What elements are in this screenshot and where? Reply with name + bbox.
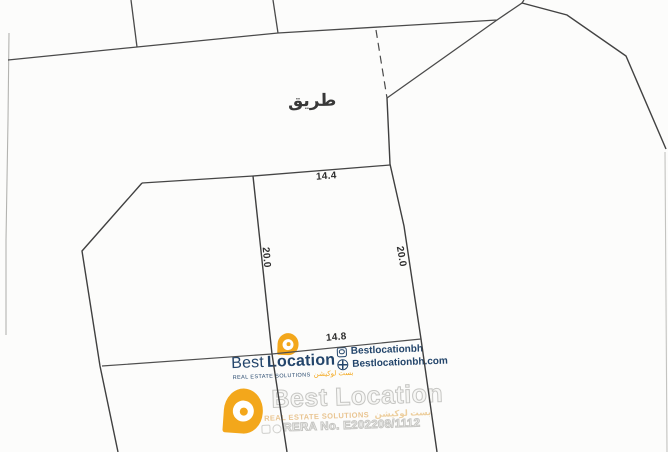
dimension-top: 14.4 [316, 170, 337, 182]
tagline-ar: بست لوكيشن [313, 370, 353, 378]
plot-north-line [142, 165, 390, 183]
dimension-bottom: 14.8 [326, 331, 348, 344]
website-row: Bestlocationbh.com [337, 356, 448, 371]
globe-icon [272, 424, 281, 433]
pin-ring [232, 400, 254, 422]
dimension-left: 20.0 [259, 244, 272, 271]
dashed-road-line [376, 30, 387, 98]
pin-ring [282, 338, 293, 349]
globe-icon [337, 359, 348, 370]
brand-contacts: Bestlocationbh Bestlocationbh.com [337, 343, 448, 371]
instagram-handle: Bestlocationbh [351, 343, 424, 357]
instagram-icon [337, 347, 347, 357]
website-url: Bestlocationbh.com [352, 356, 448, 370]
right-faint-boundary [665, 152, 667, 452]
road-north-boundary [8, 0, 524, 60]
road-diagonal-line [387, 20, 497, 98]
scanned-plot-map: { "map": { "road_label": "طريق", "dim_to… [0, 0, 668, 452]
pin-dot [286, 342, 290, 346]
top-lot-divider-2 [273, 0, 278, 33]
ghost-brand-first: Best [271, 384, 328, 414]
plot-west-boundary [82, 183, 142, 452]
left-faint-boundary [6, 33, 9, 335]
dimension-right: 20.0 [393, 243, 408, 271]
northeast-plot-boundary [522, 3, 666, 149]
brand-first: Best [231, 354, 264, 372]
instagram-icon [261, 424, 270, 433]
watermark-ghost: Best Location REAL ESTATE SOLUTIONS بست … [219, 379, 471, 450]
pin-dot [239, 407, 248, 416]
brand-second: Location [267, 351, 336, 370]
tagline-en: REAL ESTATE SOLUTIONS [233, 372, 311, 381]
road-label: طريق [288, 91, 337, 112]
location-pin-icon [222, 387, 264, 435]
watermark-logo: BestLocation REAL ESTATE SOLUTIONSبست لو… [228, 327, 470, 385]
top-lot-divider-1 [131, 0, 137, 47]
